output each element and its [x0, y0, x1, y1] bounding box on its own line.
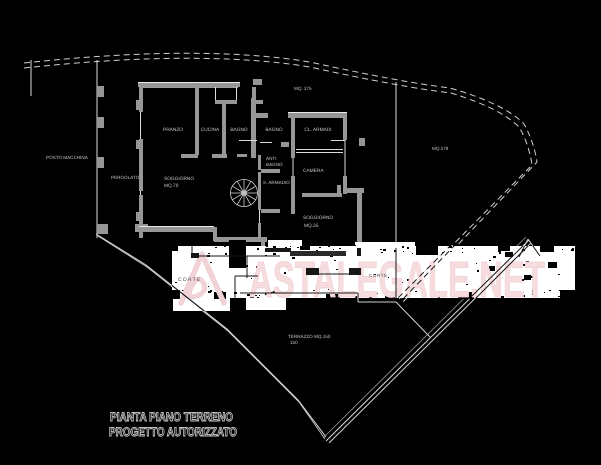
svg-text:CL. ARMADI: CL. ARMADI: [304, 127, 331, 133]
svg-text:CUCINA: CUCINA: [201, 127, 220, 133]
svg-text:CORTE: CORTE: [178, 277, 201, 283]
svg-text:MQ.35: MQ.35: [304, 223, 319, 229]
svg-text:BAGNO: BAGNO: [265, 127, 283, 133]
svg-text:S. ARMADIO: S. ARMADIO: [263, 180, 290, 185]
svg-text:PROGETTO AUTORIZZATO: PROGETTO AUTORIZZATO: [109, 425, 237, 439]
svg-text:150: 150: [290, 340, 298, 345]
svg-text:TERRAZZO MQ.150: TERRAZZO MQ.150: [288, 334, 331, 339]
svg-text:MQ. 275: MQ. 275: [294, 86, 312, 91]
svg-text:POSTO MACCHINA: POSTO MACCHINA: [46, 155, 89, 160]
svg-text:MQ.279: MQ.279: [432, 146, 449, 151]
svg-text:SOGGIORNO: SOGGIORNO: [164, 176, 194, 182]
svg-text:CORTE: CORTE: [369, 273, 388, 278]
svg-text:MQ.70: MQ.70: [164, 183, 179, 189]
svg-text:SOGGIORNO: SOGGIORNO: [303, 215, 333, 221]
svg-text:PRANZO: PRANZO: [163, 127, 183, 133]
svg-text:BAGNO: BAGNO: [266, 162, 283, 167]
svg-text:PIANTA PIANO TERRENO: PIANTA PIANO TERRENO: [110, 410, 233, 424]
svg-text:ASTALEGALE.NET: ASTALEGALE.NET: [249, 251, 545, 308]
svg-text:PERGOLATO: PERGOLATO: [111, 175, 140, 180]
svg-text:BAGNO: BAGNO: [230, 127, 248, 133]
svg-text:CAMERA: CAMERA: [303, 168, 324, 174]
svg-text:ANTI: ANTI: [266, 156, 276, 161]
